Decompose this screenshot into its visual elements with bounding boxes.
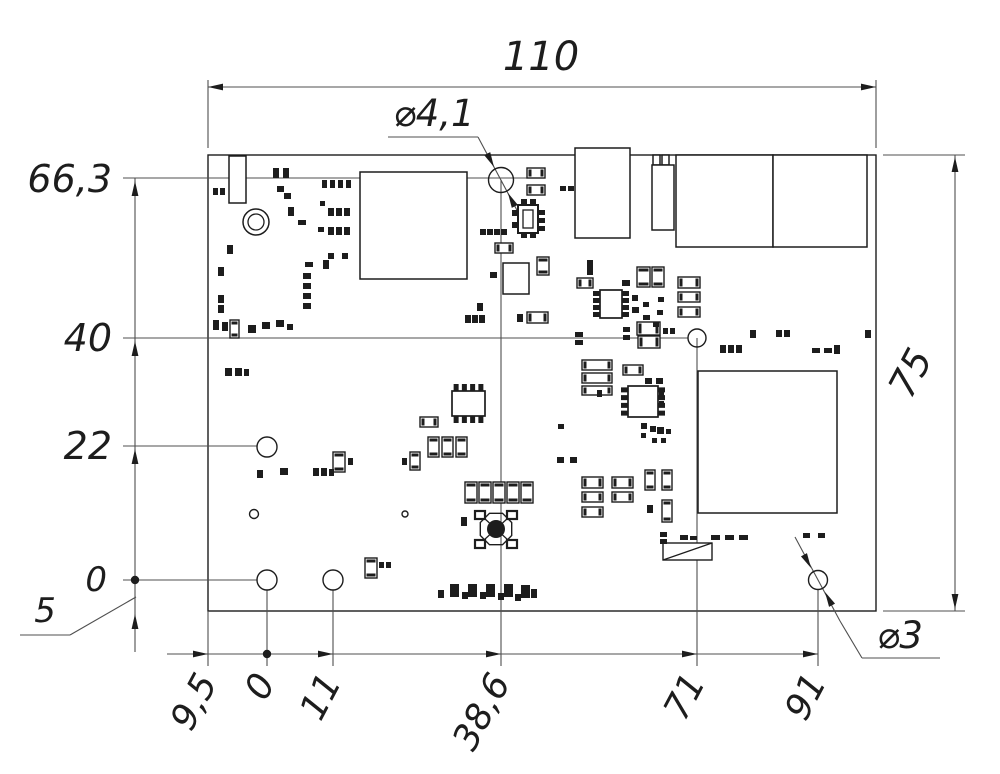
smd-pad bbox=[468, 584, 477, 597]
smd-pad bbox=[597, 390, 602, 397]
ordinate-91: 91 bbox=[777, 667, 835, 727]
smd-pad bbox=[539, 226, 545, 231]
soic-pin bbox=[622, 305, 629, 310]
chip-terminal bbox=[523, 484, 532, 487]
smd-pad bbox=[313, 468, 319, 476]
ordinate-40: 40 bbox=[64, 316, 112, 360]
smd-pad bbox=[659, 391, 664, 397]
smd-pad bbox=[487, 229, 493, 235]
soic-pin bbox=[593, 312, 600, 317]
smd-pad bbox=[379, 562, 384, 568]
smd-pad bbox=[660, 532, 667, 537]
chip-terminal bbox=[614, 494, 617, 501]
ordinate-0-bottom: 0 bbox=[237, 667, 284, 706]
dimension-arrow bbox=[822, 590, 835, 606]
smd-pad bbox=[276, 320, 284, 327]
smd-pad bbox=[680, 535, 688, 540]
smd-pad bbox=[479, 315, 485, 323]
smd-pad bbox=[262, 322, 270, 329]
smd-pad bbox=[465, 315, 471, 323]
dimension-line bbox=[70, 597, 136, 635]
ordinate-9-5: 9,5 bbox=[163, 667, 226, 737]
smd-pad bbox=[728, 345, 734, 353]
smd-pad bbox=[338, 180, 343, 188]
chip-terminal bbox=[458, 439, 466, 442]
smd-pad bbox=[386, 562, 391, 568]
chip-terminal bbox=[444, 439, 452, 442]
smd-pad bbox=[257, 470, 263, 478]
chip-terminal bbox=[335, 468, 344, 471]
smd-pad bbox=[480, 229, 486, 235]
dim-height-75: 75 bbox=[880, 341, 942, 404]
chip-terminal bbox=[541, 187, 544, 194]
smd-pad bbox=[515, 594, 521, 601]
chip-terminal bbox=[639, 283, 649, 286]
chip-terminal bbox=[640, 338, 643, 347]
smd-pad bbox=[213, 320, 219, 330]
smd-pad bbox=[273, 168, 279, 178]
chip-terminal bbox=[481, 484, 490, 487]
smd-pad bbox=[284, 193, 291, 199]
smd-pad bbox=[220, 188, 225, 195]
chip-terminal bbox=[544, 314, 547, 322]
smd-pad bbox=[303, 293, 311, 299]
ordinate-71: 71 bbox=[656, 667, 714, 727]
smd-pad bbox=[512, 210, 517, 216]
smd-pad bbox=[450, 584, 459, 597]
smd-pad bbox=[501, 229, 507, 235]
chip-terminal bbox=[664, 502, 671, 505]
soic-pin bbox=[621, 403, 628, 408]
crystal-pad bbox=[475, 540, 485, 548]
smd-pad bbox=[690, 536, 697, 540]
chip-terminal bbox=[625, 367, 628, 374]
chip-terminal bbox=[467, 499, 476, 502]
chip-terminal bbox=[529, 187, 532, 194]
smd-pad bbox=[557, 457, 564, 463]
smd-pad bbox=[480, 592, 486, 599]
soic-pin bbox=[622, 298, 629, 303]
smd-pad bbox=[587, 260, 593, 275]
chip-terminal bbox=[412, 466, 419, 469]
smd-pad bbox=[336, 208, 342, 216]
smd-pad bbox=[711, 535, 720, 540]
smd-pad bbox=[739, 535, 748, 540]
chip-terminal bbox=[639, 324, 642, 334]
smd-pad bbox=[784, 330, 790, 337]
soic-pin bbox=[658, 411, 665, 416]
smd-pad bbox=[803, 533, 810, 538]
smd-pad bbox=[661, 438, 666, 443]
hole-callout-4-1: ⌀4,1 bbox=[393, 92, 474, 135]
smd-pad bbox=[305, 262, 313, 267]
smd-pad bbox=[462, 592, 468, 599]
smd-pad bbox=[329, 469, 334, 476]
plated-ring-inner bbox=[248, 214, 264, 230]
chip-terminal bbox=[664, 486, 671, 489]
chip-terminal bbox=[529, 170, 532, 177]
chip-terminal bbox=[664, 472, 671, 475]
chip-terminal bbox=[539, 271, 548, 274]
chip-terminal bbox=[696, 294, 699, 301]
smd-pad bbox=[498, 593, 504, 600]
chip-terminal bbox=[696, 309, 699, 316]
chip-terminal bbox=[656, 338, 659, 347]
smd-pad bbox=[225, 368, 232, 376]
smd-pad bbox=[477, 303, 483, 311]
smd-pad bbox=[560, 186, 566, 191]
chip-terminal bbox=[680, 279, 683, 287]
smd-pad bbox=[659, 401, 664, 407]
dimension-arrow bbox=[952, 594, 959, 609]
dimension-arrow bbox=[682, 651, 697, 658]
chip-terminal bbox=[608, 375, 611, 382]
chip-terminal bbox=[584, 388, 587, 394]
chip-terminal bbox=[608, 388, 611, 394]
smd-pad bbox=[248, 325, 256, 333]
smd-pad bbox=[303, 303, 311, 309]
soic-pin bbox=[462, 416, 467, 423]
smd-pad bbox=[287, 324, 293, 330]
smd-pad bbox=[328, 208, 334, 216]
soic-pin bbox=[622, 291, 629, 296]
chip-terminal bbox=[584, 494, 587, 501]
drawing-surface: 11066,3402205⌀4,1⌀3759,501138,67191 bbox=[0, 0, 1000, 774]
smd-pad bbox=[303, 273, 311, 279]
smd-pad bbox=[656, 378, 663, 384]
component-body bbox=[653, 155, 660, 165]
smd-pad bbox=[346, 180, 351, 188]
smd-pad bbox=[824, 348, 832, 353]
chip-terminal bbox=[654, 283, 663, 286]
soic-pin bbox=[622, 312, 629, 317]
chip-terminal bbox=[232, 322, 238, 325]
soic-body bbox=[452, 391, 485, 416]
smd-pad bbox=[660, 539, 667, 544]
smd-pad bbox=[344, 208, 350, 216]
smd-pad bbox=[623, 335, 630, 340]
smd-pad bbox=[865, 330, 871, 338]
ordinate-38-6: 38,6 bbox=[445, 667, 519, 757]
crystal-pad bbox=[507, 540, 517, 548]
smd-pad bbox=[666, 429, 671, 434]
smd-pad bbox=[288, 207, 294, 216]
chip-terminal bbox=[579, 280, 582, 287]
component-body bbox=[698, 371, 837, 513]
smd-pad bbox=[280, 468, 288, 475]
smd-pad bbox=[328, 253, 334, 259]
smd-pad bbox=[575, 332, 583, 337]
ordinate-0-left: 0 bbox=[85, 560, 107, 600]
smd-pad bbox=[720, 345, 726, 353]
dimension-arrow bbox=[952, 157, 959, 172]
smd-pad bbox=[725, 535, 734, 540]
component-body bbox=[575, 148, 630, 238]
dimension-arrow bbox=[132, 181, 139, 196]
soic-body bbox=[600, 290, 622, 318]
smd-pad bbox=[653, 322, 659, 327]
chip-terminal bbox=[696, 279, 699, 287]
smd-pad bbox=[643, 302, 649, 307]
chip-terminal bbox=[467, 484, 476, 487]
component-body bbox=[773, 155, 867, 247]
smd-pad bbox=[321, 468, 327, 476]
smd-pad bbox=[632, 307, 639, 313]
hole-origin bbox=[257, 570, 277, 590]
smd-pad bbox=[812, 348, 820, 353]
smd-pad bbox=[652, 438, 657, 443]
dimension-arrow bbox=[208, 84, 223, 91]
origin-dot bbox=[263, 650, 271, 658]
chip-terminal bbox=[430, 453, 438, 456]
chip-terminal bbox=[629, 494, 632, 501]
smd-pad bbox=[227, 245, 233, 254]
smd-pad bbox=[643, 315, 650, 320]
hole-callout-3: ⌀3 bbox=[877, 614, 923, 657]
smd-pad bbox=[218, 267, 224, 276]
ordinate-66-3: 66,3 bbox=[27, 157, 112, 201]
smd-pad bbox=[472, 315, 478, 323]
crystal-core bbox=[487, 520, 505, 538]
hole-0-22 bbox=[257, 437, 277, 457]
chip-terminal bbox=[509, 484, 518, 487]
smd-pad bbox=[575, 340, 583, 345]
smd-pad bbox=[342, 253, 348, 259]
chip-terminal bbox=[495, 499, 504, 502]
chip-terminal bbox=[523, 499, 532, 502]
chip-terminal bbox=[232, 334, 238, 337]
smd-pad bbox=[622, 280, 630, 286]
smd-pad bbox=[539, 218, 545, 223]
chip-terminal bbox=[539, 259, 548, 262]
smd-pad bbox=[461, 517, 467, 526]
smd-pad bbox=[834, 345, 840, 354]
chip-terminal bbox=[497, 245, 500, 252]
smd-pad bbox=[657, 310, 663, 315]
chip-terminal bbox=[639, 367, 642, 374]
smd-pad bbox=[776, 330, 782, 337]
dimension-arrow bbox=[132, 341, 139, 356]
dimension-arrow bbox=[803, 651, 818, 658]
dimension-line bbox=[840, 621, 862, 658]
smd-pad bbox=[486, 584, 495, 597]
chip-terminal bbox=[495, 484, 504, 487]
chip-terminal bbox=[509, 499, 518, 502]
chip-terminal bbox=[584, 362, 587, 369]
soic-pin bbox=[470, 416, 475, 423]
smd-pad bbox=[504, 584, 513, 597]
smd-pad bbox=[521, 199, 527, 204]
smd-pad bbox=[494, 229, 500, 235]
soic-pin bbox=[454, 416, 459, 423]
smd-pad bbox=[530, 233, 536, 238]
component-body bbox=[652, 165, 674, 230]
soic-pin bbox=[470, 384, 475, 391]
smd-pad bbox=[222, 322, 228, 331]
ordinate-11: 11 bbox=[292, 667, 350, 727]
chip-terminal bbox=[529, 314, 532, 322]
soic-pin bbox=[621, 395, 628, 400]
smd-pad bbox=[645, 378, 652, 384]
smd-pad bbox=[750, 330, 756, 338]
chip-terminal bbox=[629, 479, 632, 487]
chip-terminal bbox=[481, 499, 490, 502]
soic-body bbox=[628, 386, 658, 417]
soic-pin bbox=[593, 298, 600, 303]
component-body bbox=[662, 155, 669, 165]
smd-pad bbox=[657, 427, 664, 434]
smd-pad bbox=[521, 585, 530, 598]
chip-terminal bbox=[584, 479, 587, 487]
chip-terminal bbox=[614, 479, 617, 487]
smd-pad bbox=[336, 227, 342, 235]
dim-width-110: 110 bbox=[503, 34, 579, 80]
smd-pad bbox=[641, 423, 647, 429]
smd-pad bbox=[318, 227, 324, 232]
soic-pin bbox=[621, 387, 628, 392]
smd-pad bbox=[623, 327, 630, 332]
dimension-arrow bbox=[193, 651, 208, 658]
chip-terminal bbox=[412, 454, 419, 457]
chip-terminal bbox=[589, 280, 592, 287]
dimension-arrow bbox=[132, 449, 139, 464]
smd-pad bbox=[402, 458, 407, 465]
ordinate-5: 5 bbox=[34, 591, 56, 631]
smd-pad bbox=[277, 186, 284, 192]
smd-pad bbox=[568, 186, 574, 191]
ordinate-22: 22 bbox=[64, 424, 112, 468]
soic-pin bbox=[593, 291, 600, 296]
chip-terminal bbox=[664, 518, 671, 521]
chip-terminal bbox=[654, 269, 663, 272]
soic-pin bbox=[478, 416, 483, 423]
smd-pad bbox=[531, 589, 537, 598]
component-body bbox=[503, 263, 529, 294]
via bbox=[250, 510, 259, 519]
crystal-pad bbox=[507, 511, 517, 519]
crystal-pad bbox=[475, 511, 485, 519]
hole-11-0 bbox=[323, 570, 343, 590]
soic-pin bbox=[478, 384, 483, 391]
via bbox=[402, 511, 408, 517]
chip-terminal bbox=[422, 419, 425, 426]
dimension-arrow bbox=[801, 553, 814, 569]
smd-pad bbox=[218, 305, 224, 313]
origin-dot bbox=[131, 576, 139, 584]
small-ic-body bbox=[518, 205, 538, 233]
smd-pad bbox=[818, 533, 825, 538]
chip-terminal bbox=[430, 439, 438, 442]
chip-terminal bbox=[647, 486, 654, 489]
chip-terminal bbox=[599, 479, 602, 487]
dimension-arrow bbox=[318, 651, 333, 658]
smd-pad bbox=[539, 210, 545, 215]
soic-pin bbox=[454, 384, 459, 391]
component-body bbox=[676, 155, 773, 247]
smd-pad bbox=[490, 272, 497, 278]
smd-pad bbox=[632, 295, 638, 301]
smd-pad bbox=[328, 227, 334, 235]
chip-terminal bbox=[335, 454, 344, 457]
smd-pad bbox=[512, 222, 517, 228]
component-body bbox=[229, 156, 246, 203]
dimension-arrow bbox=[861, 84, 876, 91]
smd-pad bbox=[517, 314, 523, 322]
chip-terminal bbox=[367, 560, 376, 563]
plated-ring-outer bbox=[243, 209, 269, 235]
chip-terminal bbox=[458, 453, 466, 456]
smd-pad bbox=[348, 458, 353, 465]
smd-pad bbox=[641, 433, 646, 438]
dimension-arrow bbox=[132, 614, 139, 629]
chip-terminal bbox=[599, 494, 602, 501]
smd-pad bbox=[322, 180, 327, 188]
chip-terminal bbox=[608, 362, 611, 369]
smd-pad bbox=[244, 369, 249, 376]
chip-terminal bbox=[541, 170, 544, 177]
pcb-dimension-drawing: 11066,3402205⌀4,1⌀3759,501138,67191 bbox=[0, 0, 1000, 774]
smd-pad bbox=[213, 188, 218, 195]
chip-terminal bbox=[584, 509, 587, 516]
smd-pad bbox=[650, 426, 656, 432]
chip-terminal bbox=[680, 294, 683, 301]
smd-pad bbox=[658, 297, 664, 302]
smd-pad bbox=[736, 345, 742, 353]
smd-pad bbox=[438, 590, 444, 598]
smd-pad bbox=[218, 295, 224, 303]
smd-pad bbox=[298, 220, 306, 225]
smd-pad bbox=[323, 260, 329, 269]
soic-pin bbox=[621, 411, 628, 416]
chip-terminal bbox=[647, 472, 654, 475]
smd-pad bbox=[670, 328, 675, 334]
chip-terminal bbox=[509, 245, 512, 252]
smd-pad bbox=[303, 283, 311, 289]
chip-terminal bbox=[434, 419, 437, 426]
smd-pad bbox=[663, 328, 668, 334]
smd-pad bbox=[570, 457, 577, 463]
smd-pad bbox=[283, 168, 289, 178]
smd-pad bbox=[558, 424, 564, 429]
chip-terminal bbox=[444, 453, 452, 456]
chip-terminal bbox=[639, 269, 649, 272]
chip-terminal bbox=[680, 309, 683, 316]
component-body bbox=[360, 172, 467, 279]
smd-pad bbox=[647, 505, 653, 513]
smd-pad bbox=[330, 180, 335, 188]
smd-pad bbox=[235, 368, 242, 376]
chip-terminal bbox=[367, 574, 376, 577]
smd-pad bbox=[521, 233, 527, 238]
dimension-arrow bbox=[505, 191, 518, 207]
dimension-arrow bbox=[486, 651, 501, 658]
soic-pin bbox=[462, 384, 467, 391]
chip-terminal bbox=[584, 375, 587, 382]
soic-pin bbox=[593, 305, 600, 310]
chip-terminal bbox=[599, 509, 602, 516]
smd-pad bbox=[344, 227, 350, 235]
smd-pad bbox=[530, 199, 536, 204]
smd-pad bbox=[320, 201, 325, 206]
